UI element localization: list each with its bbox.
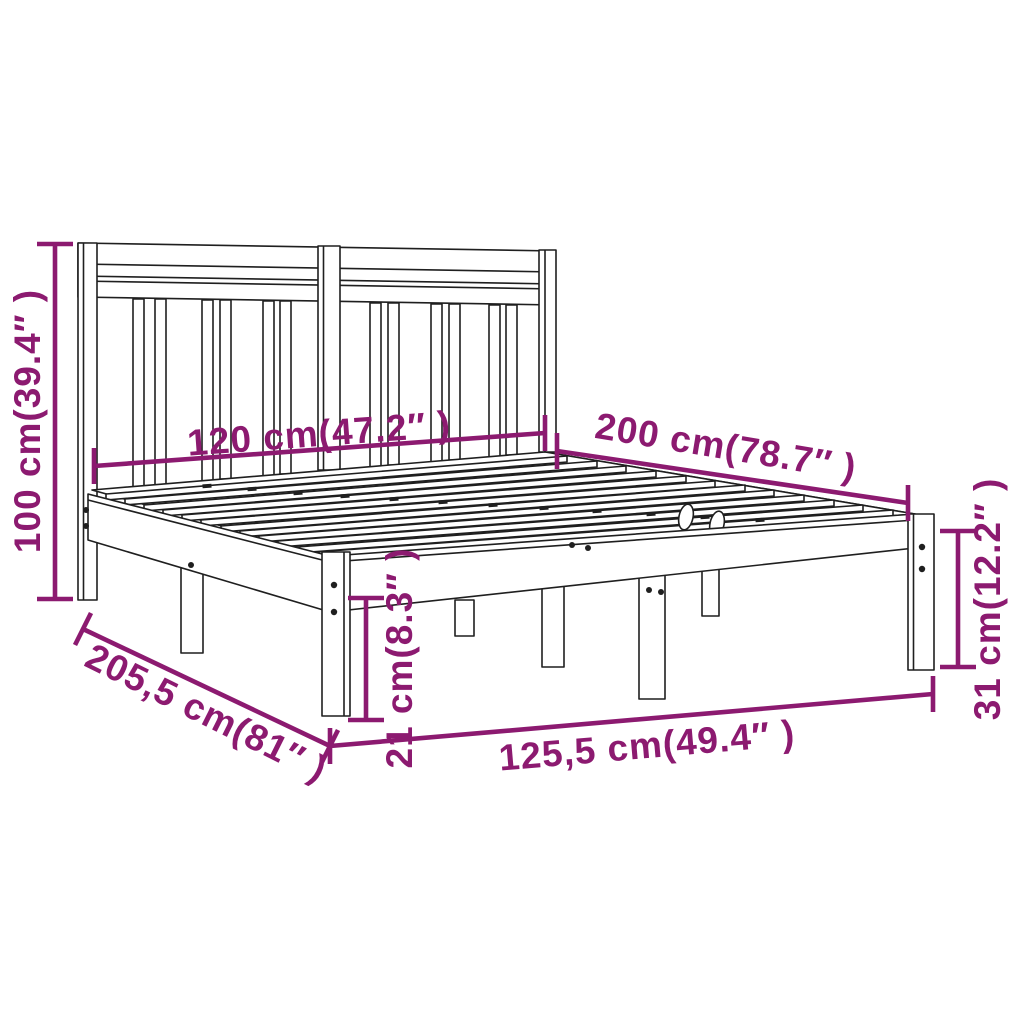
slat-strap-clip bbox=[293, 491, 302, 496]
headboard-slat bbox=[133, 299, 144, 487]
slat-strap-clip bbox=[389, 497, 398, 502]
screw bbox=[331, 609, 337, 615]
screw bbox=[919, 544, 925, 550]
dimension-side-rail-height: 31 cm(12.2″ ) bbox=[940, 478, 1008, 721]
bed-leg bbox=[455, 600, 474, 636]
diagram-canvas: 100 cm(39.4″ ) 120 cm(47.2″ ) 200 cm(78.… bbox=[0, 0, 1024, 1024]
dimension-label: 100 cm(39.4″ ) bbox=[7, 289, 48, 553]
screw bbox=[646, 587, 652, 593]
headboard-slat bbox=[155, 299, 166, 485]
screw bbox=[83, 523, 89, 529]
slat-strap-clip bbox=[700, 515, 709, 520]
front-right-corner-leg bbox=[908, 514, 934, 670]
screw bbox=[188, 562, 194, 568]
dimension-label: 31 cm(12.2″ ) bbox=[967, 478, 1008, 721]
dimension-label: 125,5 cm(49.4″ ) bbox=[497, 712, 796, 778]
slat-strap-clip bbox=[340, 494, 349, 499]
dimension-label: 21 cm(8.3″ ) bbox=[379, 548, 420, 769]
dimension-frame-length: 205,5 cm(81″ ) bbox=[75, 613, 338, 790]
headboard-slat bbox=[506, 305, 517, 455]
slat-strap-clip bbox=[247, 487, 256, 492]
screw bbox=[658, 589, 664, 595]
bed-leg bbox=[639, 560, 665, 699]
screw bbox=[569, 542, 575, 548]
bed-frame-dimension-diagram: 100 cm(39.4″ ) 120 cm(47.2″ ) 200 cm(78.… bbox=[0, 0, 1024, 1024]
foot-left-corner-leg bbox=[322, 552, 350, 716]
screw bbox=[919, 566, 925, 572]
slat-strap-clip bbox=[646, 512, 655, 517]
dimension-cap bbox=[75, 613, 91, 645]
screw bbox=[585, 545, 591, 551]
dimension-headboard-height: 100 cm(39.4″ ) bbox=[7, 244, 73, 599]
headboard-right-post bbox=[539, 250, 556, 452]
slat-strap-clip bbox=[202, 484, 211, 489]
slat-strap-clip bbox=[438, 500, 447, 505]
slat-strap-clip bbox=[488, 503, 497, 508]
bed-leg bbox=[702, 565, 719, 616]
slat-strap-clip bbox=[755, 518, 764, 523]
screw bbox=[83, 507, 89, 513]
dimension-label: 205,5 cm(81″ ) bbox=[79, 636, 334, 791]
headboard-top-rails bbox=[78, 243, 555, 305]
headboard-left-post bbox=[78, 243, 97, 600]
slat-strap-clip bbox=[539, 506, 548, 511]
slat-strap-clip bbox=[592, 509, 601, 514]
screw bbox=[331, 582, 337, 588]
dimension-frame-width: 125,5 cm(49.4″ ) bbox=[330, 676, 933, 779]
